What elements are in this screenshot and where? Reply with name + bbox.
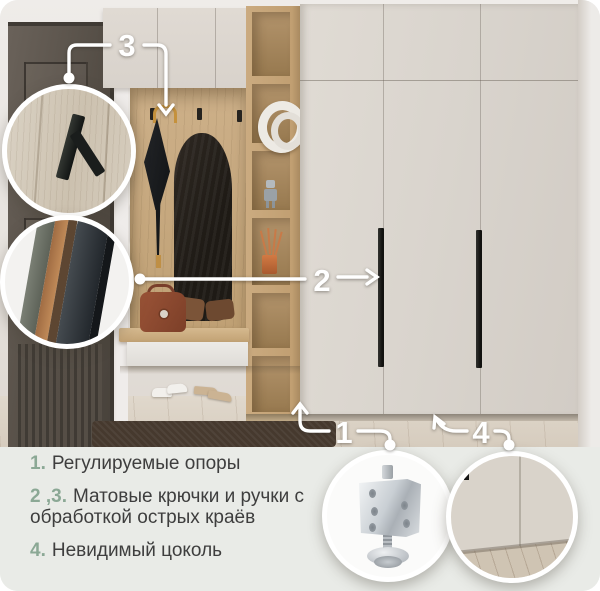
legend-text: Матовые крючки и ручки с обработкой остр…: [30, 486, 304, 528]
bracket-hole: [369, 489, 376, 498]
sneaker: [167, 383, 188, 394]
bracket-hole: [401, 501, 408, 510]
robot-figurine: [266, 180, 275, 188]
open-shelf-column: [246, 6, 300, 418]
diffuser-bottle: [262, 255, 277, 274]
product-card: 1.Регулируемые опоры 2 ,3.Матовые крючки…: [0, 0, 600, 591]
robot-figurine: [266, 201, 275, 208]
legend-item-2-3: 2 ,3.Матовые крючки и ручки с обработкой…: [30, 486, 348, 528]
bag-medallion: [160, 310, 168, 318]
shelf-cell: [252, 12, 290, 76]
plinth-door-seam: [519, 456, 521, 552]
legend-item-1: 1.Регулируемые опоры: [30, 453, 348, 474]
shelf-cell: [252, 218, 290, 285]
legend-number: 4.: [30, 540, 46, 561]
wardrobe-plinth-gap: [300, 414, 578, 421]
bracket-hole: [369, 523, 376, 532]
umbrella-tip: [156, 255, 161, 268]
legend-list: 1.Регулируемые опоры 2 ,3.Матовые крючки…: [30, 453, 348, 573]
hanging-coat: [174, 133, 232, 321]
column-plinth-gap: [246, 414, 300, 421]
coat-lining: [205, 298, 235, 321]
bracket-hole: [403, 519, 410, 528]
inset-invisible-plinth-closeup: [446, 451, 578, 583]
bracket-hole: [371, 507, 378, 516]
robot-figurine: [264, 189, 277, 201]
cabinet-seam: [215, 8, 216, 88]
bench-drawer: [127, 342, 248, 366]
cabinet-seam: [157, 8, 158, 88]
coat-hook: [197, 108, 202, 120]
legend-item-4: 4.Невидимый цоколь: [30, 540, 348, 561]
foot-base: [374, 556, 402, 568]
doormat-rug: [92, 421, 336, 447]
right-wall: [578, 0, 600, 447]
inset-matte-hook-closeup: [2, 84, 136, 218]
coat-hook: [237, 110, 242, 122]
inset-handle-edge-closeup: [0, 215, 134, 349]
legend-number: 2 ,3.: [30, 486, 67, 507]
shelf-cell: [252, 293, 290, 348]
wardrobe-handle: [378, 228, 384, 367]
bench-shadow: [120, 366, 300, 374]
legend-number: 1.: [30, 453, 46, 474]
handle-profile: [12, 215, 134, 349]
wardrobe-seam: [300, 80, 578, 81]
legend-text: Регулируемые опоры: [52, 453, 241, 474]
foot-bracket: [359, 479, 421, 537]
upper-cabinets: [103, 8, 246, 88]
shelf-cell: [252, 356, 290, 412]
wardrobe-handle: [476, 230, 482, 368]
door-lower-panel: [18, 344, 102, 448]
wardrobe: [300, 4, 578, 418]
plinth-handle-sliver: [464, 456, 469, 480]
legend-text: Невидимый цоколь: [52, 540, 222, 561]
foot-screw: [382, 465, 393, 479]
inset-adjustable-foot-closeup: [322, 450, 454, 582]
